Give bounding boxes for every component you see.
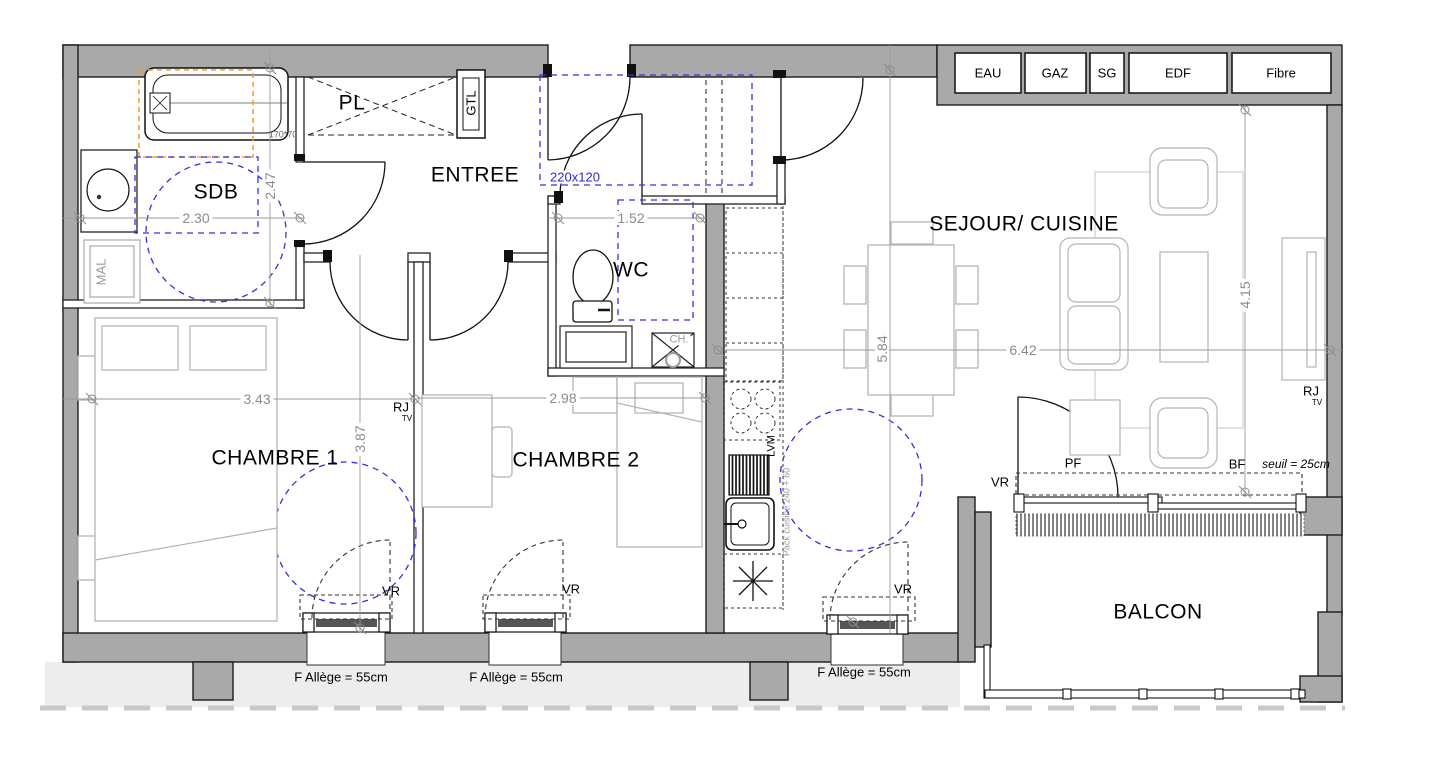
site-lines [40, 662, 1345, 708]
tv-outlet-sejour: TV [1312, 399, 1322, 407]
room-label-wc: WC [613, 260, 649, 281]
bathtub [145, 68, 288, 140]
utility-box-gaz: GAZ [1042, 67, 1069, 80]
room-label-chambre2: CHAMBRE 2 [512, 450, 639, 471]
water-heater-label: CH. [668, 335, 691, 346]
allege-note-chambre2: F Allège = 55cm [469, 671, 563, 684]
dim-bathtub-size: 170*70 [269, 131, 298, 140]
dim-chambre1-depth: 3.87 [353, 422, 367, 455]
dim-chambre1-width: 3.43 [240, 392, 273, 406]
washing-machine-label: MAL [95, 259, 108, 286]
washing-machine [84, 240, 140, 303]
dim-salon-depth: 4.15 [1238, 278, 1252, 311]
room-label-chambre1: CHAMBRE 1 [211, 448, 338, 469]
siphon-symbol [733, 561, 773, 601]
dishwasher [729, 455, 769, 495]
threshold-hatch [1016, 514, 1304, 536]
balcony-parapet [984, 645, 1305, 699]
dim-sdb-width: 2.30 [179, 211, 212, 225]
room-label-balcon: BALCON [1113, 602, 1202, 623]
room-label-entree: ENTREE [431, 165, 519, 186]
rj-outlet-sejour: RJ [1303, 385, 1319, 398]
utility-box-edf: EDF [1165, 67, 1191, 80]
bay-window [1014, 494, 1306, 512]
dining-set [844, 222, 978, 416]
wc-washbasin [560, 326, 632, 368]
window-casement-arcs [312, 540, 908, 620]
utility-box-fibre: Fibre [1266, 67, 1296, 80]
dim-sdb-depth: 2.47 [263, 169, 277, 202]
vr-label-baie: VR [991, 476, 1009, 489]
dim-sejour-width: 6.42 [1006, 343, 1039, 357]
vr-label-chambre2: VR [562, 583, 580, 596]
floor-plan: EAU GAZ SG EDF Fibre SDB PL ENTREE WC SE… [0, 0, 1444, 784]
window-chambre2 [485, 613, 566, 632]
chambre1-furniture [78, 318, 277, 621]
utility-box-eau: EAU [975, 67, 1002, 80]
dim-chambre2-width: 2.98 [546, 391, 579, 405]
room-label-pl: PL [339, 93, 366, 114]
pf-label: PF [1065, 457, 1082, 470]
room-label-sdb: SDB [194, 182, 239, 203]
rj-outlet-chambre1: RJ [393, 401, 409, 414]
seuil-note: seuil = 25cm [1262, 458, 1330, 470]
allege-note-cuisine: F Allège = 55cm [817, 666, 911, 679]
window-chambre1 [303, 613, 390, 632]
tv-outlet-chambre1: TV [402, 415, 412, 423]
kitchen-pack-label: Pack cuisine 240 + 60 [783, 468, 792, 556]
bf-label: BF [1229, 458, 1246, 471]
dashed-wall-projection [706, 80, 722, 196]
dim-wc-width: 1.52 [614, 211, 647, 225]
toilet [573, 250, 613, 322]
allege-note-chambre1: F Allège = 55cm [294, 671, 388, 684]
gtl-label: GTL [465, 90, 478, 115]
floor-plan-drawing [0, 0, 1444, 784]
closet [308, 77, 456, 135]
dim-entree-clearance: 220x120 [548, 171, 602, 184]
kitchen-sink [724, 498, 774, 550]
washbasin [81, 150, 137, 232]
room-label-sejour-cuisine: SEJOUR/ CUISINE [929, 214, 1119, 235]
living-set [1060, 148, 1325, 468]
window-cuisine [827, 615, 908, 634]
vr-label-cuisine: VR [894, 583, 912, 596]
dim-sejour-depth: 5.84 [875, 332, 889, 365]
vr-label-chambre1: VR [382, 585, 400, 598]
dishwasher-label: LVM [767, 435, 778, 457]
utility-box-sg: SG [1098, 67, 1117, 80]
